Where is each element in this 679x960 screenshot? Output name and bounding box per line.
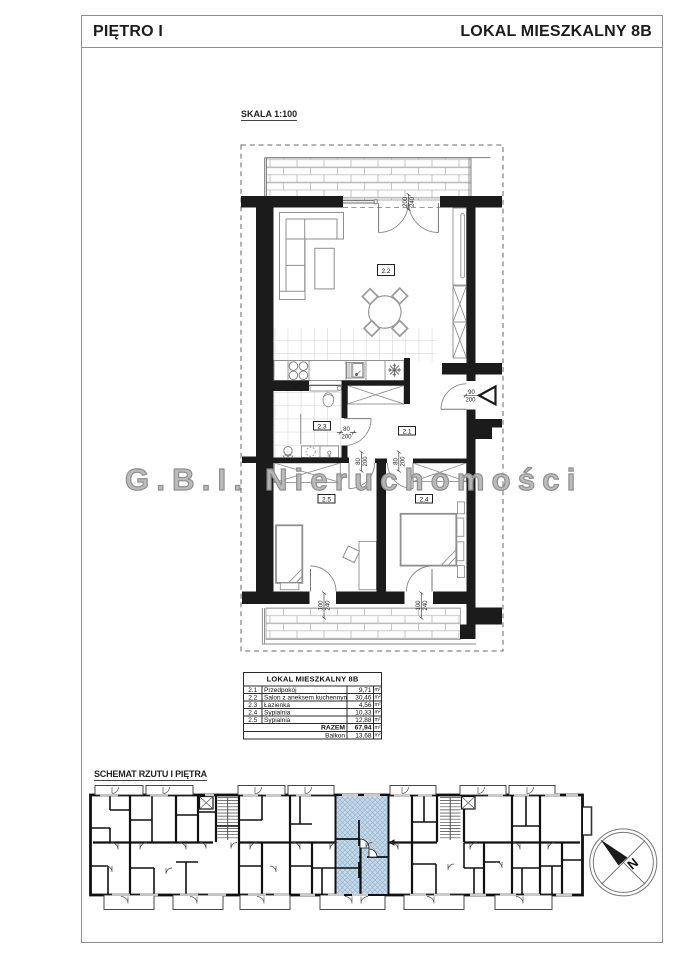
svg-text:240: 240 — [423, 600, 429, 611]
svg-text:2.3: 2.3 — [317, 424, 326, 431]
svg-text:90: 90 — [468, 390, 475, 396]
svg-text:240: 240 — [410, 196, 416, 207]
svg-text:240: 240 — [326, 600, 332, 611]
svg-text:100: 100 — [416, 600, 422, 611]
svg-text:100: 100 — [319, 600, 325, 611]
svg-text:2.2: 2.2 — [381, 268, 390, 275]
svg-text:200: 200 — [341, 435, 352, 441]
svg-text:200: 200 — [403, 196, 409, 207]
svg-text:200: 200 — [465, 398, 476, 404]
svg-text:80: 80 — [343, 427, 350, 433]
svg-text:2.1: 2.1 — [402, 429, 411, 436]
